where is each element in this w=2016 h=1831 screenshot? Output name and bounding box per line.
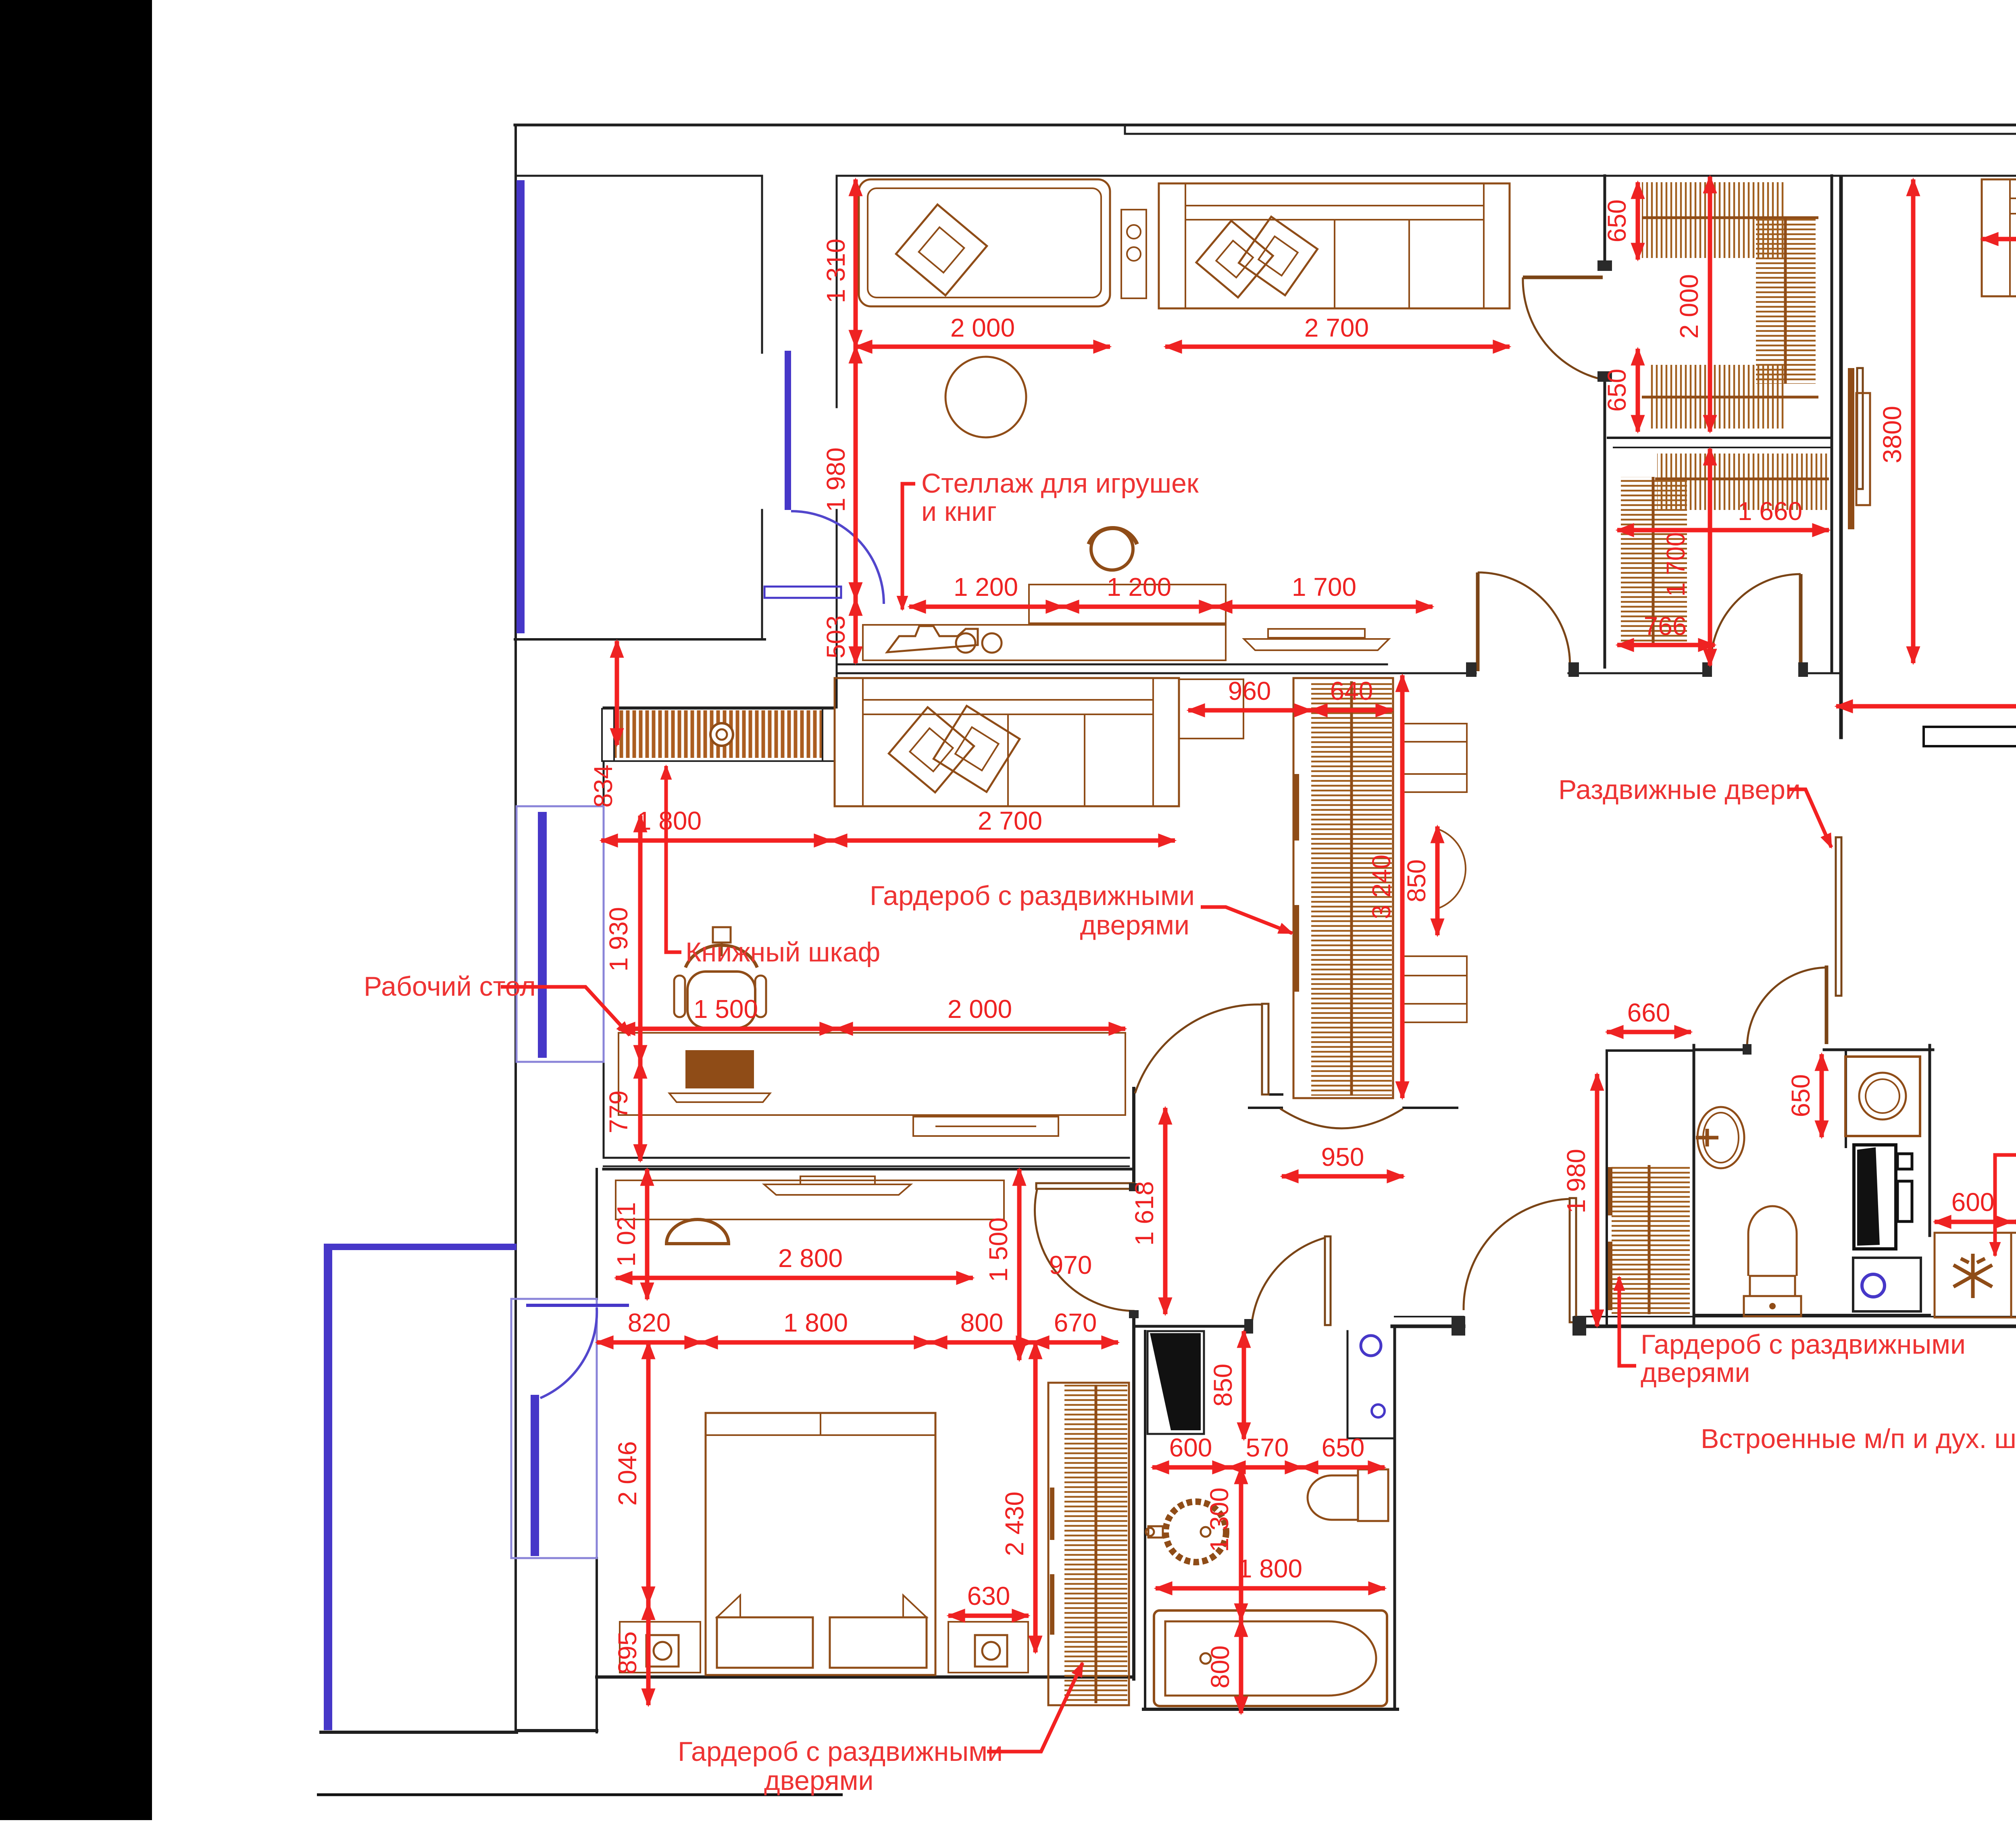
svg-text:650: 650: [1602, 369, 1631, 412]
svg-text:503: 503: [821, 616, 850, 659]
svg-text:Книжный шкаф: Книжный шкаф: [685, 937, 881, 968]
svg-text:2 000: 2 000: [948, 995, 1012, 1024]
svg-text:Встроенные м/п и дух. шкаф: Встроенные м/п и дух. шкаф: [1701, 1423, 2016, 1454]
svg-text:2 700: 2 700: [1304, 313, 1369, 342]
svg-text:960: 960: [1228, 676, 1271, 705]
svg-text:2 700: 2 700: [978, 806, 1042, 835]
svg-text:834: 834: [589, 765, 618, 808]
svg-text:дверями: дверями: [764, 1765, 873, 1796]
svg-text:1 660: 1 660: [1738, 497, 1802, 526]
svg-text:766: 766: [1644, 612, 1687, 641]
svg-text:Гардероб с раздвижными: Гардероб с раздвижными: [1641, 1329, 1966, 1360]
svg-text:640: 640: [1330, 676, 1373, 705]
svg-text:Гардероб с раздвижными: Гардероб с раздвижными: [870, 880, 1195, 911]
svg-text:1 500: 1 500: [694, 995, 758, 1024]
svg-text:1 700: 1 700: [1661, 532, 1690, 597]
svg-text:1 800: 1 800: [1238, 1554, 1302, 1583]
svg-text:820: 820: [628, 1308, 671, 1337]
svg-text:2 000: 2 000: [1674, 274, 1704, 339]
svg-text:660: 660: [1627, 998, 1670, 1027]
svg-text:630: 630: [967, 1581, 1010, 1610]
svg-text:650: 650: [1322, 1433, 1365, 1462]
svg-text:650: 650: [1602, 200, 1631, 243]
svg-text:1 618: 1 618: [1130, 1181, 1159, 1246]
svg-text:1 800: 1 800: [637, 806, 702, 835]
svg-text:1 021: 1 021: [612, 1202, 641, 1267]
svg-text:800: 800: [1206, 1646, 1235, 1689]
svg-text:850: 850: [1402, 859, 1431, 903]
svg-text:1 980: 1 980: [821, 447, 850, 512]
svg-text:1 500: 1 500: [984, 1217, 1013, 1282]
svg-text:970: 970: [1049, 1250, 1092, 1280]
svg-text:650: 650: [1786, 1074, 1815, 1117]
svg-text:670: 670: [1054, 1308, 1097, 1337]
svg-text:2 046: 2 046: [613, 1441, 642, 1506]
svg-text:1 930: 1 930: [604, 907, 633, 972]
svg-text:895: 895: [613, 1631, 642, 1675]
svg-text:Раздвижные двери: Раздвижные двери: [1558, 774, 1801, 805]
svg-text:1 310: 1 310: [821, 239, 850, 303]
svg-text:1 200: 1 200: [1107, 572, 1171, 601]
svg-text:2 000: 2 000: [950, 313, 1015, 342]
svg-text:800: 800: [960, 1308, 1004, 1337]
svg-text:Гардероб с раздвижными: Гардероб с раздвижными: [678, 1736, 1003, 1767]
svg-text:1 800: 1 800: [783, 1308, 848, 1337]
svg-text:1 300: 1 300: [1205, 1488, 1234, 1552]
svg-text:Стеллаж для игрушек: Стеллаж для игрушек: [921, 468, 1199, 499]
svg-text:600: 600: [1169, 1433, 1212, 1462]
svg-text:и книг: и книг: [921, 496, 997, 527]
svg-text:дверями: дверями: [1080, 910, 1189, 940]
svg-text:2 430: 2 430: [1000, 1492, 1029, 1556]
svg-text:950: 950: [1321, 1142, 1364, 1171]
svg-text:3800: 3800: [1878, 406, 1907, 463]
svg-text:дверями: дверями: [1641, 1357, 1750, 1388]
svg-text:3 240: 3 240: [1367, 855, 1396, 919]
svg-text:570: 570: [1246, 1433, 1289, 1462]
svg-text:1 200: 1 200: [954, 572, 1018, 601]
svg-text:779: 779: [604, 1090, 633, 1134]
svg-text:850: 850: [1208, 1364, 1237, 1407]
svg-text:2 800: 2 800: [778, 1244, 843, 1273]
svg-text:600: 600: [1951, 1188, 1995, 1217]
svg-text:1 980: 1 980: [1562, 1149, 1591, 1213]
svg-text:1 700: 1 700: [1292, 572, 1356, 601]
